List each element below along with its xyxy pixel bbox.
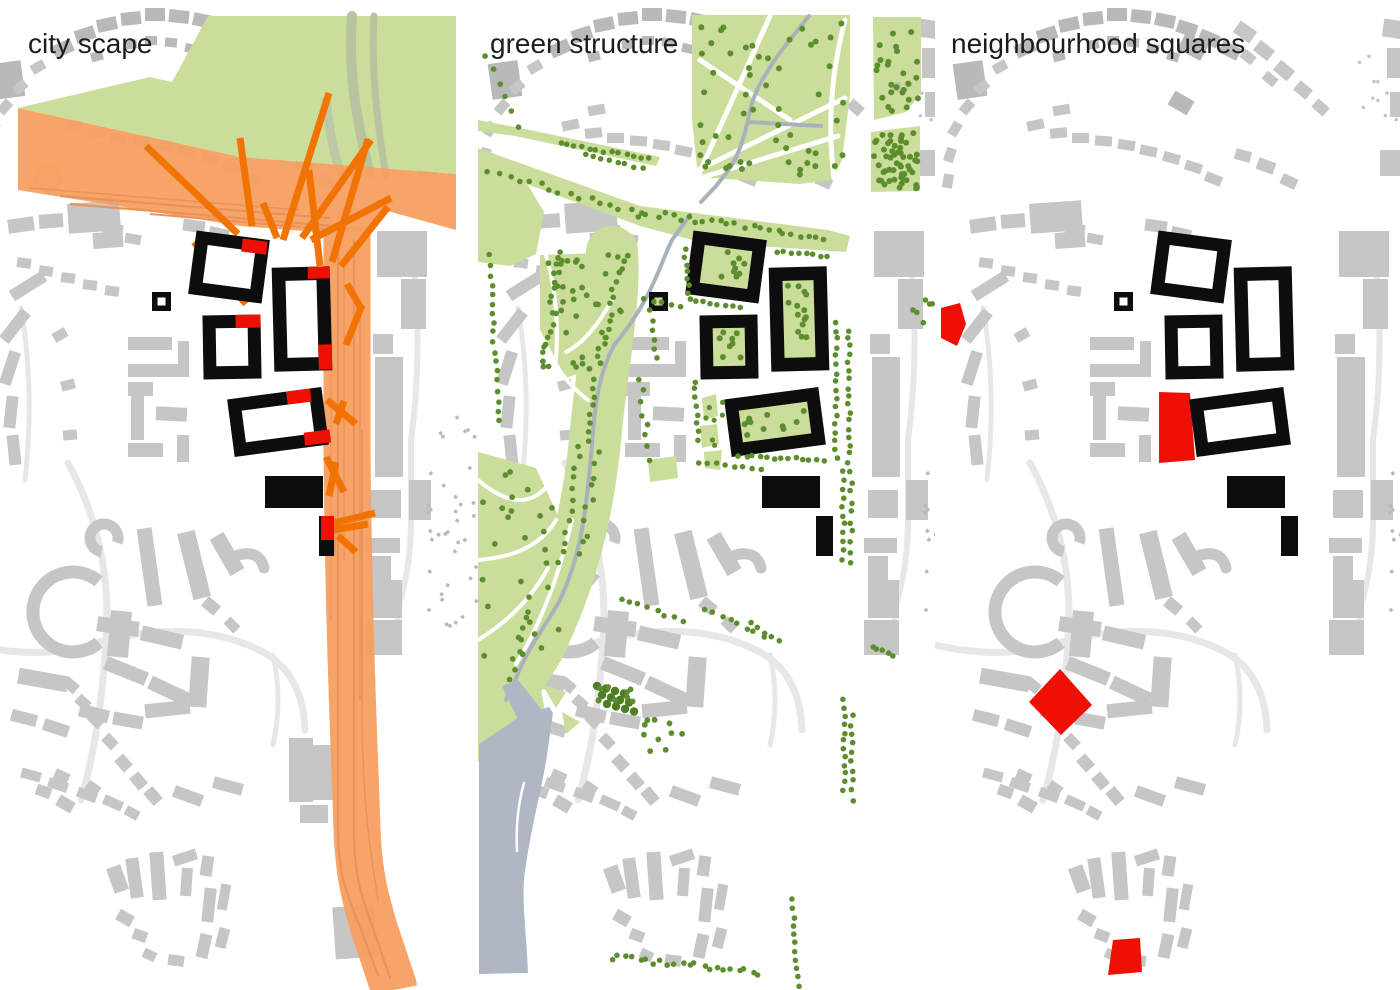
svg-text:city scape: city scape [28,28,153,59]
svg-text:neighbourhood squares: neighbourhood squares [951,28,1245,59]
svg-text:green structure: green structure [490,28,678,59]
